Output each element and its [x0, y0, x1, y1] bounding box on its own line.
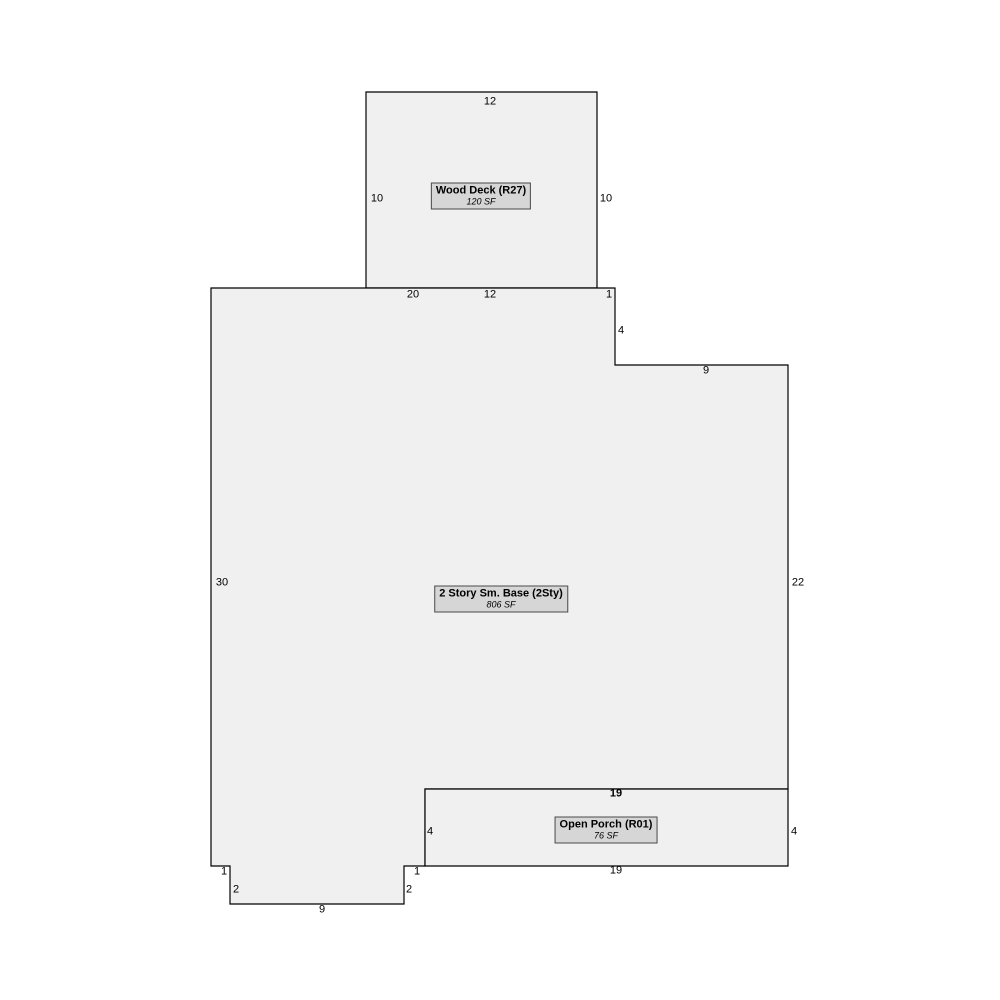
dimension-label-two-story-base-2: 1 [606, 290, 612, 301]
dimension-label-open-porch-1: 4 [427, 827, 433, 838]
property-sketch-drawing [0, 0, 1000, 1000]
area-square-footage-wood-deck: 120 SF [436, 197, 526, 207]
dimension-label-two-story-base-1: 12 [484, 290, 496, 301]
dimension-label-two-story-base-0: 20 [407, 290, 419, 301]
dimension-label-two-story-base-11: 1 [414, 867, 420, 878]
area-name-two-story-base: 2 Story Sm. Base (2Sty) [439, 588, 563, 600]
area-name-wood-deck: Wood Deck (R27) [436, 185, 526, 197]
dimension-label-wood-deck-0: 12 [484, 97, 496, 108]
dimension-label-wood-deck-1: 10 [371, 194, 383, 205]
dimension-label-two-story-base-4: 9 [703, 366, 709, 377]
dimension-label-two-story-base-5: 22 [792, 578, 804, 589]
dimension-label-open-porch-0: 19 [610, 789, 622, 800]
sketch-canvas: Wood Deck (R27)120 SF1210102 Story Sm. B… [0, 0, 1000, 1000]
dimension-label-two-story-base-6: 30 [216, 578, 228, 589]
area-label-box-two-story-base: 2 Story Sm. Base (2Sty)806 SF [434, 586, 568, 613]
dimension-label-open-porch-3: 19 [610, 866, 622, 877]
area-label-box-open-porch: Open Porch (R01)76 SF [555, 817, 658, 844]
area-square-footage-open-porch: 76 SF [560, 831, 653, 841]
dimension-label-two-story-base-8: 2 [233, 885, 239, 896]
dimension-label-two-story-base-10: 2 [406, 885, 412, 896]
dimension-label-two-story-base-7: 1 [221, 867, 227, 878]
dimension-label-two-story-base-3: 4 [618, 326, 624, 337]
area-label-box-wood-deck: Wood Deck (R27)120 SF [431, 183, 531, 210]
area-square-footage-two-story-base: 806 SF [439, 600, 563, 610]
dimension-label-open-porch-2: 4 [791, 827, 797, 838]
area-name-open-porch: Open Porch (R01) [560, 819, 653, 831]
dimension-label-wood-deck-2: 10 [600, 194, 612, 205]
dimension-label-two-story-base-9: 9 [319, 905, 325, 916]
